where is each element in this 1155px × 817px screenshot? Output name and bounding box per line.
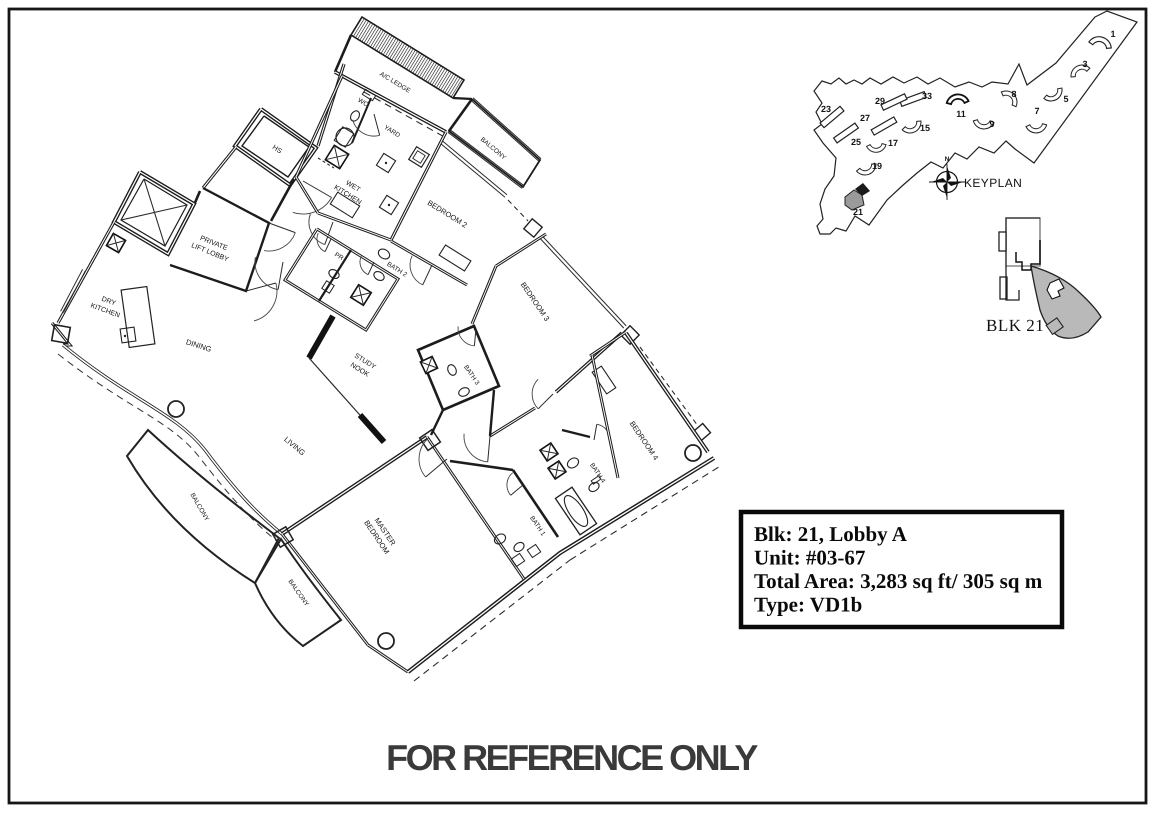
svg-text:KEYPLAN: KEYPLAN <box>964 176 1022 190</box>
svg-text:5: 5 <box>1063 94 1068 104</box>
svg-text:29: 29 <box>875 96 885 106</box>
svg-text:Total Area: 3,283 sq ft/ 305 s: Total Area: 3,283 sq ft/ 305 sq m <box>754 569 1043 593</box>
svg-text:19: 19 <box>872 161 882 171</box>
svg-text:15: 15 <box>920 123 930 133</box>
svg-text:Type: VD1b: Type: VD1b <box>754 593 862 617</box>
svg-text:23: 23 <box>821 104 831 114</box>
svg-text:FOR REFERENCE ONLY: FOR REFERENCE ONLY <box>386 737 758 778</box>
svg-text:17: 17 <box>888 138 898 148</box>
svg-text:1: 1 <box>1110 29 1115 39</box>
svg-text:7: 7 <box>1034 106 1039 116</box>
svg-text:N: N <box>945 156 950 163</box>
svg-text:33: 33 <box>922 91 932 101</box>
svg-text:Blk: 21, Lobby A: Blk: 21, Lobby A <box>754 522 908 546</box>
svg-text:25: 25 <box>851 137 861 147</box>
svg-text:27: 27 <box>860 113 870 123</box>
svg-text:BLK 21: BLK 21 <box>986 316 1044 335</box>
svg-text:11: 11 <box>956 109 966 119</box>
svg-text:8: 8 <box>1011 89 1016 99</box>
svg-text:Unit: #03-67: Unit: #03-67 <box>754 546 865 570</box>
svg-text:3: 3 <box>1082 59 1087 69</box>
svg-text:9: 9 <box>989 119 994 129</box>
